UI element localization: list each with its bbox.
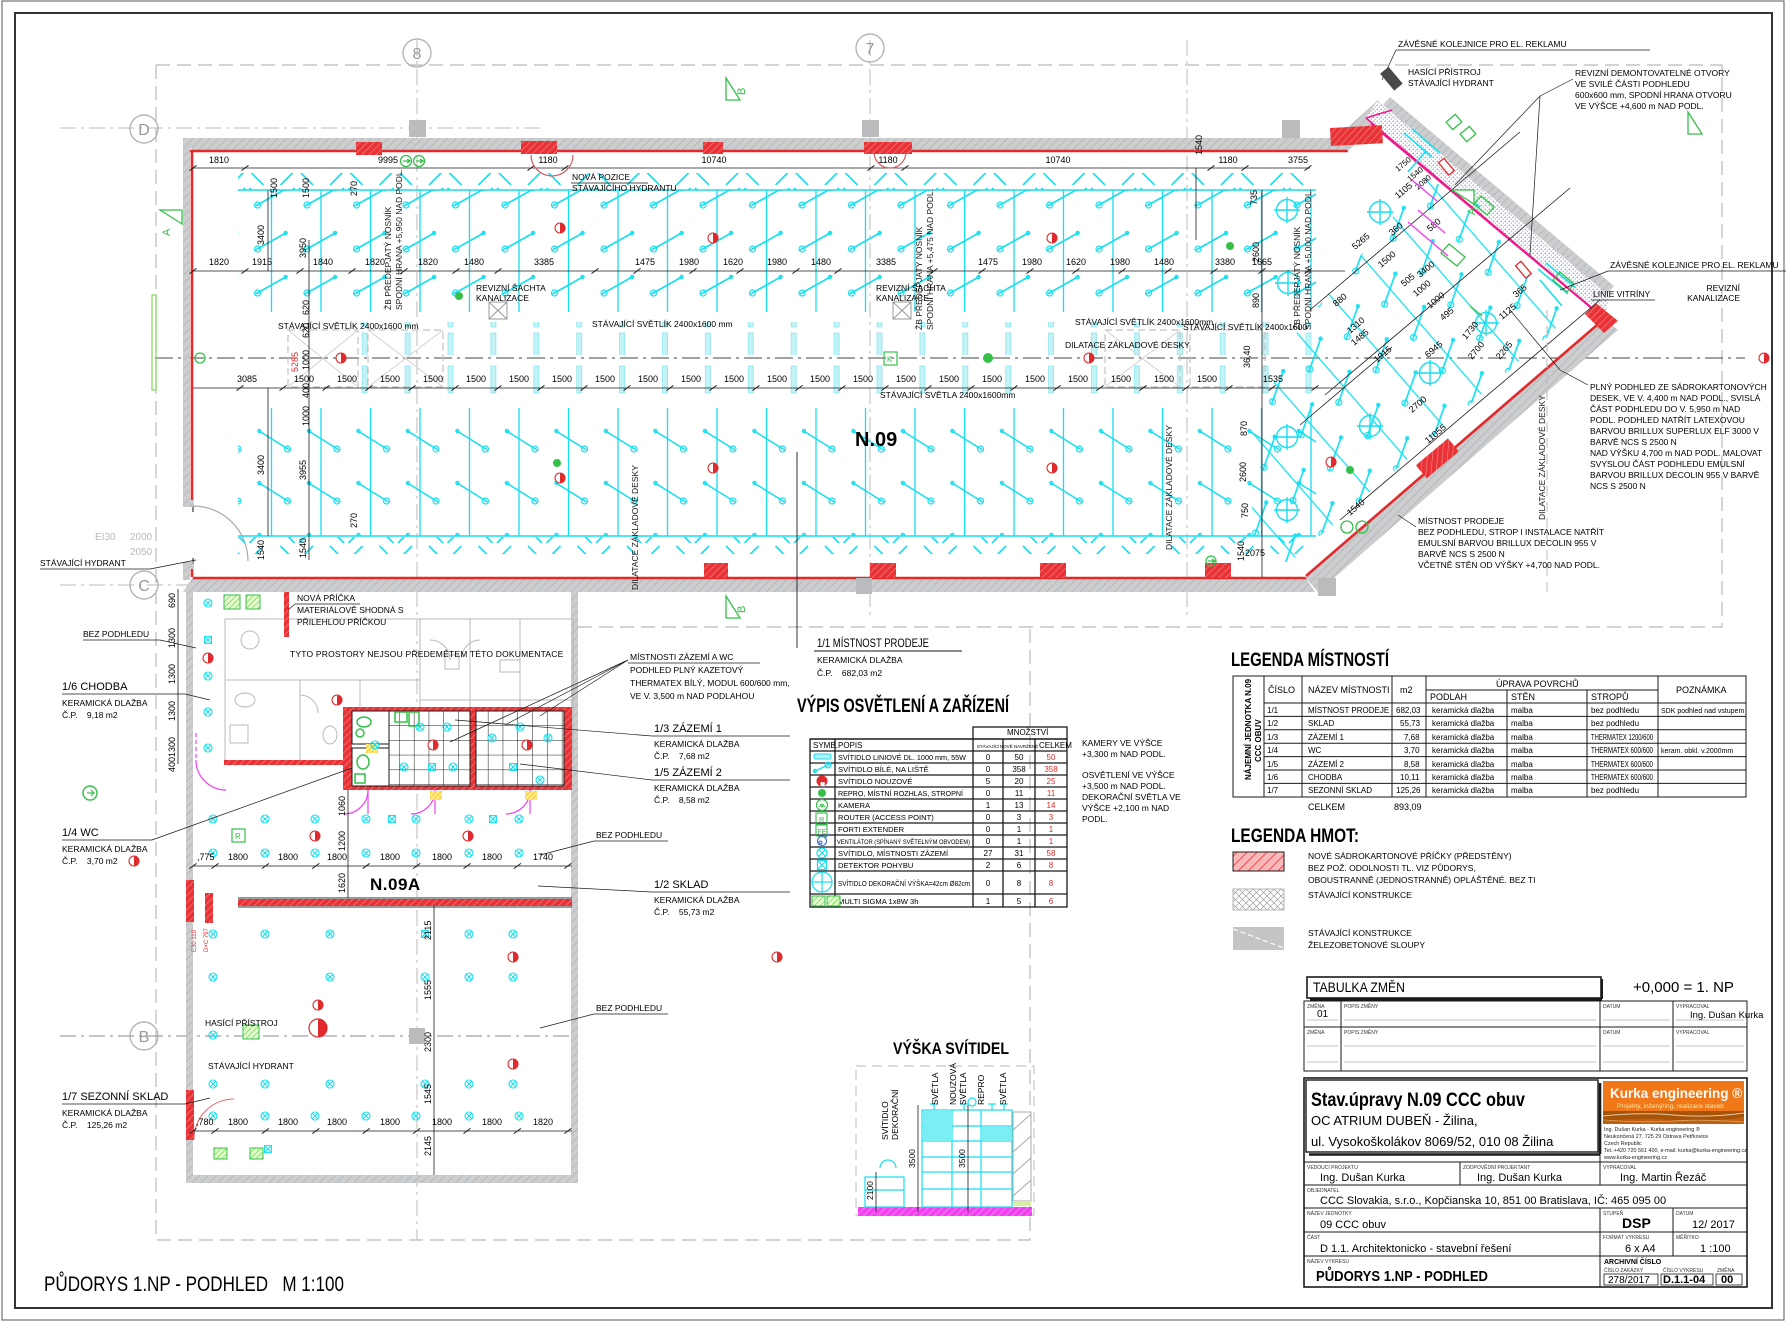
svg-text:REVIZNÍ ŠACHTA: REVIZNÍ ŠACHTA bbox=[876, 283, 946, 293]
svg-text:KERAMICKÁ DLAŽBA: KERAMICKÁ DLAŽBA bbox=[654, 783, 740, 793]
svg-text:ŽELEZOBETONOVÉ SLOUPY: ŽELEZOBETONOVÉ SLOUPY bbox=[1308, 940, 1425, 950]
svg-text:D 1.1. Architektonicko - stave: D 1.1. Architektonicko - stavební řešení bbox=[1320, 1243, 1511, 1255]
svg-text:keram. obkl. v.2000mm: keram. obkl. v.2000mm bbox=[1661, 748, 1733, 755]
svg-text:PODLAH: PODLAH bbox=[1430, 692, 1467, 702]
svg-text:1 :100: 1 :100 bbox=[1700, 1243, 1731, 1255]
svg-text:POPIS ZMĚNY: POPIS ZMĚNY bbox=[1344, 1028, 1379, 1036]
svg-text:KAMERA: KAMERA bbox=[838, 801, 871, 810]
svg-text:keramická dlažba: keramická dlažba bbox=[1432, 719, 1495, 728]
svg-text:keramická dlažba: keramická dlažba bbox=[1432, 706, 1495, 715]
svg-text:ZÁVĚSNÉ KOLEJNICE PRO EL. REKL: ZÁVĚSNÉ KOLEJNICE PRO EL. REKLAMU bbox=[1610, 260, 1779, 270]
svg-text:Ing. Dušan Kurka - Kurka engin: Ing. Dušan Kurka - Kurka engineering ® bbox=[1604, 1126, 1700, 1133]
svg-text:1500: 1500 bbox=[380, 374, 400, 384]
svg-text:1500: 1500 bbox=[294, 374, 314, 384]
svg-text:malba: malba bbox=[1511, 773, 1533, 782]
svg-text:KERAMICKÁ DLAŽBA: KERAMICKÁ DLAŽBA bbox=[62, 844, 148, 854]
svg-text:REVIZNÍ ŠACHTA: REVIZNÍ ŠACHTA bbox=[476, 283, 546, 293]
svg-text:12/ 2017: 12/ 2017 bbox=[1692, 1219, 1735, 1231]
svg-text:SDK podhled nad vstupem: SDK podhled nad vstupem bbox=[1661, 708, 1744, 715]
svg-text:ČÍSLO: ČÍSLO bbox=[1268, 685, 1295, 695]
svg-text:735: 735 bbox=[1249, 190, 1259, 205]
svg-text:MATERIÁLOVĚ SHODNÁ S: MATERIÁLOVĚ SHODNÁ S bbox=[297, 605, 404, 615]
svg-text:8: 8 bbox=[1017, 879, 1022, 888]
svg-text:STÁVAJÍCÍ SVĚTLÍK 2400x1600 mm: STÁVAJÍCÍ SVĚTLÍK 2400x1600 mm bbox=[592, 319, 733, 329]
svg-text:DSP: DSP bbox=[1622, 1215, 1651, 1231]
svg-text:STÁVAJÍCÍ HYDRANT: STÁVAJÍCÍ HYDRANT bbox=[40, 558, 126, 568]
svg-text:N.09: N.09 bbox=[855, 429, 897, 451]
svg-text:E30 110: E30 110 bbox=[192, 929, 198, 952]
svg-text:ČÍSLO VÝKRESU: ČÍSLO VÝKRESU bbox=[1663, 1267, 1704, 1274]
svg-text:1820: 1820 bbox=[418, 257, 438, 267]
svg-text:ul. Vysokoškolákov 8069/52, 01: ul. Vysokoškolákov 8069/52, 010 08 Žilin… bbox=[1311, 1134, 1554, 1149]
svg-text:STÁVAJÍCÍ KONSTRUKCE: STÁVAJÍCÍ KONSTRUKCE bbox=[1308, 890, 1412, 900]
svg-text:870: 870 bbox=[1239, 421, 1249, 436]
svg-text:BEZ PODHLEDU: BEZ PODHLEDU bbox=[596, 830, 662, 840]
svg-text:NÁZEV VÝKRESU: NÁZEV VÝKRESU bbox=[1307, 1258, 1349, 1265]
svg-text:7,68: 7,68 bbox=[1404, 733, 1420, 742]
svg-text:1500: 1500 bbox=[1068, 374, 1088, 384]
svg-text:LINIE VITRÍNY: LINIE VITRÍNY bbox=[1593, 289, 1650, 299]
svg-text:keramická dlažba: keramická dlažba bbox=[1432, 786, 1495, 795]
svg-text:NOVÁ POZICE: NOVÁ POZICE bbox=[572, 172, 630, 182]
svg-text:1800: 1800 bbox=[432, 852, 452, 862]
svg-text:DATUM: DATUM bbox=[1676, 1211, 1693, 1217]
svg-text:1/2: 1/2 bbox=[1267, 719, 1279, 728]
svg-text:1500: 1500 bbox=[767, 374, 787, 384]
svg-text:R: R bbox=[235, 832, 241, 841]
svg-text:malba: malba bbox=[1511, 760, 1533, 769]
svg-text:10740: 10740 bbox=[701, 155, 726, 165]
svg-text:1800: 1800 bbox=[228, 852, 248, 862]
svg-text:SVÍTIDLO LINIOVÉ DL. 1000 mm,: SVÍTIDLO LINIOVÉ DL. 1000 mm, 55W bbox=[838, 753, 967, 762]
svg-text:1500: 1500 bbox=[552, 374, 572, 384]
svg-text:B: B bbox=[736, 88, 748, 95]
svg-text:BEZ POŽ. ODOLNOSTI TL. VIZ PŮ: BEZ POŽ. ODOLNOSTI TL. VIZ PŮDORYS, bbox=[1308, 862, 1476, 873]
svg-text:SKLAD: SKLAD bbox=[1308, 719, 1334, 728]
svg-text:ČÁST PODHLEDU DO V. 5,950 m NA: ČÁST PODHLEDU DO V. 5,950 m NAD bbox=[1590, 404, 1740, 414]
svg-text:SVÍTIDLO NOUZOVÉ: SVÍTIDLO NOUZOVÉ bbox=[838, 777, 912, 786]
svg-text:1060: 1060 bbox=[337, 796, 347, 816]
svg-text:0: 0 bbox=[986, 813, 991, 822]
svg-text:BARVĚ NCS S 2500 N: BARVĚ NCS S 2500 N bbox=[1590, 437, 1677, 447]
svg-text:1300: 1300 bbox=[167, 737, 177, 757]
svg-text:ŽB PŘEDEPJATÝ NOSNÍK: ŽB PŘEDEPJATÝ NOSNÍK bbox=[383, 206, 393, 310]
svg-text:3385: 3385 bbox=[876, 257, 896, 267]
svg-text:3400: 3400 bbox=[256, 455, 266, 475]
svg-text:6: 6 bbox=[1017, 861, 1022, 870]
svg-text:3385: 3385 bbox=[534, 257, 554, 267]
svg-text:THERMATEX 600/600: THERMATEX 600/600 bbox=[1591, 760, 1653, 769]
svg-text:1500: 1500 bbox=[810, 374, 830, 384]
svg-text:NCS S 2500 N: NCS S 2500 N bbox=[1590, 481, 1646, 491]
svg-text:1/3: 1/3 bbox=[1267, 733, 1279, 742]
svg-text:2100: 2100 bbox=[865, 1181, 875, 1200]
svg-text:STĚN: STĚN bbox=[1511, 692, 1535, 702]
svg-text:NOVÁ PŘÍČKA: NOVÁ PŘÍČKA bbox=[297, 593, 355, 603]
svg-text:1500: 1500 bbox=[638, 374, 658, 384]
svg-text:OBJEDNATEL: OBJEDNATEL bbox=[1307, 1188, 1340, 1194]
svg-text:KERAMICKÁ DLAŽBA: KERAMICKÁ DLAŽBA bbox=[654, 895, 740, 905]
svg-text:MÍSTNOST PRODEJE: MÍSTNOST PRODEJE bbox=[1418, 516, 1505, 526]
svg-text:STÁVAJÍCÍHO HYDRANTU: STÁVAJÍCÍHO HYDRANTU bbox=[572, 183, 677, 193]
svg-text:NÁZEV MÍSTNOSTI: NÁZEV MÍSTNOSTI bbox=[1308, 685, 1390, 695]
svg-text:NAD VÝŠKU 4,700 m NAD PODL. MA: NAD VÝŠKU 4,700 m NAD PODL. MALOVAT bbox=[1590, 448, 1762, 458]
svg-text:9995: 9995 bbox=[378, 155, 398, 165]
svg-text:SVĚTLA: SVĚTLA bbox=[958, 1072, 968, 1105]
svg-text:ŽB PŘEDEPJATÝ NOSNÍK: ŽB PŘEDEPJATÝ NOSNÍK bbox=[1292, 226, 1302, 330]
svg-text:1800: 1800 bbox=[278, 1117, 298, 1127]
svg-text:Č.P. 7,68 m2: Č.P. 7,68 m2 bbox=[654, 751, 710, 761]
svg-text:55,73: 55,73 bbox=[1400, 719, 1421, 728]
svg-text:VEDOUCÍ PROJEKTU: VEDOUCÍ PROJEKTU bbox=[1307, 1164, 1358, 1171]
svg-text:CCC Slovakia, s.r.o., Kopčians: CCC Slovakia, s.r.o., Kopčianska 10, 851… bbox=[1320, 1194, 1666, 1207]
svg-text:358: 358 bbox=[1012, 765, 1026, 774]
svg-text:1300: 1300 bbox=[167, 628, 177, 648]
svg-text:1820: 1820 bbox=[209, 257, 229, 267]
svg-text:BARVĚ NCS S 2500 N: BARVĚ NCS S 2500 N bbox=[1418, 549, 1505, 559]
svg-text:1840: 1840 bbox=[313, 257, 333, 267]
svg-text:1200: 1200 bbox=[337, 831, 347, 851]
svg-text:EI30: EI30 bbox=[95, 532, 116, 543]
svg-text:NÁZEV JEDNOTKY: NÁZEV JEDNOTKY bbox=[1307, 1210, 1352, 1217]
svg-text:keramická dlažba: keramická dlažba bbox=[1432, 760, 1495, 769]
svg-text:890: 890 bbox=[1251, 293, 1261, 308]
svg-text:A: A bbox=[1466, 207, 1478, 215]
svg-text:600x600 mm, SPODNÍ HRANA OTVOR: 600x600 mm, SPODNÍ HRANA OTVORU bbox=[1575, 90, 1732, 100]
svg-text:REVIZNÍ DEMONTOVATELNÉ OTVORY: REVIZNÍ DEMONTOVATELNÉ OTVORY bbox=[1575, 68, 1730, 78]
svg-text:POPIS: POPIS bbox=[838, 741, 862, 750]
svg-text:11: 11 bbox=[1047, 789, 1056, 798]
svg-text:1/1: 1/1 bbox=[1267, 706, 1279, 715]
svg-text:0: 0 bbox=[986, 837, 991, 846]
svg-text:STROPŮ: STROPŮ bbox=[1591, 691, 1629, 702]
svg-text:Kurka engineering ®: Kurka engineering ® bbox=[1610, 1086, 1742, 1101]
svg-text:DILATACE ZÁKLADOVÉ DESKY: DILATACE ZÁKLADOVÉ DESKY bbox=[630, 465, 640, 590]
svg-text:8: 8 bbox=[413, 46, 422, 63]
svg-text:1300: 1300 bbox=[167, 664, 177, 684]
svg-text:Č.P. 125,26 m2: Č.P. 125,26 m2 bbox=[62, 1120, 127, 1130]
svg-text:27: 27 bbox=[984, 849, 993, 858]
svg-text:DILATACE ZÁKLADOVÉ DESKY: DILATACE ZÁKLADOVÉ DESKY bbox=[1164, 425, 1174, 550]
svg-text:Ing. Dušan Kurka: Ing. Dušan Kurka bbox=[1320, 1172, 1406, 1184]
svg-text:TYTO PROSTORY NEJSOU PŘEDEMĚTE: TYTO PROSTORY NEJSOU PŘEDEMĚTEM TÉTO DOK… bbox=[290, 649, 564, 659]
svg-text:25: 25 bbox=[1047, 777, 1056, 786]
svg-text:1800: 1800 bbox=[327, 852, 347, 862]
svg-text:1535: 1535 bbox=[1263, 374, 1283, 384]
svg-text:7: 7 bbox=[866, 41, 875, 58]
svg-text:NOVÉ SÁDROKARTONOVÉ PŘÍČKY (P: NOVÉ SÁDROKARTONOVÉ PŘÍČKY (PŘEDSTĚNY) bbox=[1308, 851, 1512, 861]
svg-text:DEKORAČNÍ: DEKORAČNÍ bbox=[890, 1089, 900, 1140]
svg-text:09 CCC obuv: 09 CCC obuv bbox=[1320, 1219, 1387, 1231]
svg-text:THERMATEX BÍLÝ, MODUL 600/600: THERMATEX BÍLÝ, MODUL 600/600 mm, bbox=[630, 678, 790, 688]
svg-text:1820: 1820 bbox=[533, 1117, 553, 1127]
svg-text:2600: 2600 bbox=[1251, 242, 1261, 262]
svg-text:VE SVILÉ ČÁSTI PODHLEDU: VE SVILÉ ČÁSTI PODHLEDU bbox=[1575, 79, 1690, 89]
svg-text:1/4 WC: 1/4 WC bbox=[62, 827, 99, 839]
svg-text:1475: 1475 bbox=[978, 257, 998, 267]
svg-text:STUPEŇ: STUPEŇ bbox=[1603, 1210, 1624, 1217]
svg-text:1500: 1500 bbox=[595, 374, 615, 384]
svg-text:1000: 1000 bbox=[301, 350, 311, 370]
svg-text:ZÁZEMÍ 2: ZÁZEMÍ 2 bbox=[1308, 760, 1345, 769]
svg-text:1: 1 bbox=[1017, 825, 1022, 834]
svg-text:1800: 1800 bbox=[380, 1117, 400, 1127]
svg-text:BARVOU BRILLUX DECOLIN 955 V B: BARVOU BRILLUX DECOLIN 955 V BARVĚ bbox=[1590, 470, 1760, 480]
svg-text:DEKORAČNÍ SVĚTLA VE: DEKORAČNÍ SVĚTLA VE bbox=[1082, 792, 1181, 802]
svg-text:OSVĚTLENÍ VE VÝŠCE: OSVĚTLENÍ VE VÝŠCE bbox=[1082, 770, 1175, 780]
svg-text:3085: 3085 bbox=[237, 374, 257, 384]
svg-text:LEGENDA MÍSTNOSTÍ: LEGENDA MÍSTNOSTÍ bbox=[1231, 649, 1390, 671]
svg-text:VENTILÁTOR (SPÍNANÝ SVĚTELNÝM: VENTILÁTOR (SPÍNANÝ SVĚTELNÝM OBVODEM) bbox=[837, 837, 970, 846]
svg-text:PODHLED PLNÝ KAZETOVÝ: PODHLED PLNÝ KAZETOVÝ bbox=[630, 665, 744, 675]
svg-text:NOUZOVÁ: NOUZOVÁ bbox=[948, 1063, 958, 1105]
svg-text:www.kurka-engineering.cz: www.kurka-engineering.cz bbox=[1603, 1155, 1667, 1161]
svg-text:2: 2 bbox=[986, 861, 991, 870]
svg-text:TABULKA ZMĚN: TABULKA ZMĚN bbox=[1313, 980, 1405, 995]
svg-text:750: 750 bbox=[1240, 503, 1250, 518]
svg-text:STÁVAJÍCÍ SVĚTLÍK 2400x1600 mm: STÁVAJÍCÍ SVĚTLÍK 2400x1600 mm bbox=[278, 321, 419, 331]
svg-text:1/4: 1/4 bbox=[1267, 746, 1279, 755]
svg-text:278/2017: 278/2017 bbox=[1608, 1275, 1650, 1286]
svg-text:Ing. Dušan Kurka: Ing. Dušan Kurka bbox=[1477, 1172, 1563, 1184]
svg-text:1915: 1915 bbox=[252, 257, 272, 267]
svg-text:1500: 1500 bbox=[896, 374, 916, 384]
svg-text:00: 00 bbox=[1721, 1274, 1733, 1286]
svg-text:Neukončená 27, 725 29 Ostrava: Neukončená 27, 725 29 Ostrava Petřkovice bbox=[1604, 1134, 1708, 1140]
svg-text:682,03: 682,03 bbox=[1396, 706, 1421, 715]
svg-text:1180: 1180 bbox=[878, 155, 897, 165]
svg-text:3950: 3950 bbox=[298, 238, 308, 258]
svg-text:KERAMICKÁ DLAŽBA: KERAMICKÁ DLAŽBA bbox=[817, 655, 903, 665]
svg-text:MULTI SIGMA 1x8W 3h: MULTI SIGMA 1x8W 3h bbox=[838, 897, 918, 906]
svg-text:SPODNÍ HRANA +5,000 NAD PODL.: SPODNÍ HRANA +5,000 NAD PODL. bbox=[1303, 189, 1313, 330]
svg-text:8: 8 bbox=[1049, 879, 1054, 888]
svg-text:358: 358 bbox=[1044, 765, 1058, 774]
svg-text:DESEK, VE V. 4,400 m NAD POD: DESEK, VE V. 4,400 m NAD PODL., SVISLÁ bbox=[1590, 393, 1761, 403]
svg-text:VYPRACOVAL: VYPRACOVAL bbox=[1676, 1030, 1710, 1036]
svg-text:PŘILEHLOU PŘÍČKOU: PŘILEHLOU PŘÍČKOU bbox=[297, 617, 386, 627]
svg-text:125,26: 125,26 bbox=[1396, 786, 1421, 795]
svg-text:1500: 1500 bbox=[301, 178, 311, 198]
svg-text:1300: 1300 bbox=[167, 701, 177, 721]
svg-text:CHODBA: CHODBA bbox=[1308, 773, 1343, 782]
svg-text:MÍSTNOST PRODEJE: MÍSTNOST PRODEJE bbox=[1308, 706, 1389, 715]
svg-text:POPIS ZMĚNY: POPIS ZMĚNY bbox=[1344, 1002, 1379, 1010]
svg-text:2050: 2050 bbox=[130, 547, 153, 558]
svg-text:1/2 SKLAD: 1/2 SKLAD bbox=[654, 879, 708, 891]
svg-text:58: 58 bbox=[1047, 849, 1056, 858]
svg-text:6: 6 bbox=[1049, 897, 1054, 906]
svg-text:1480: 1480 bbox=[464, 257, 484, 267]
svg-text:VE V. 3,500 m NAD PODLAHOU: VE V. 3,500 m NAD PODLAHOU bbox=[630, 691, 754, 701]
svg-text:m2: m2 bbox=[1400, 685, 1413, 695]
svg-text:1180: 1180 bbox=[538, 155, 557, 165]
svg-text:OBOUSTRANNĚ (JEDNOSTRANNĚ) OP: OBOUSTRANNĚ (JEDNOSTRANNĚ) OPLÁŠTĚNÉ. BE… bbox=[1308, 875, 1536, 885]
svg-text:3: 3 bbox=[1049, 813, 1054, 822]
svg-text:STÁVAJÍCÍ: STÁVAJÍCÍ bbox=[977, 743, 1000, 749]
svg-text:3: 3 bbox=[1017, 813, 1022, 822]
svg-text:400: 400 bbox=[301, 383, 311, 398]
svg-text:SPODNÍ HRANA +5,950 NAD PODL.: SPODNÍ HRANA +5,950 NAD PODL. bbox=[394, 169, 404, 310]
svg-text:STÁVAJÍCÍ KONSTRUKCE: STÁVAJÍCÍ KONSTRUKCE bbox=[1308, 928, 1412, 938]
svg-text:+3,500 m NAD PODL.: +3,500 m NAD PODL. bbox=[1082, 781, 1166, 791]
svg-text:1500: 1500 bbox=[681, 374, 701, 384]
svg-text:1800: 1800 bbox=[278, 852, 298, 862]
svg-text:1/6 CHODBA: 1/6 CHODBA bbox=[62, 681, 128, 693]
svg-text:1: 1 bbox=[986, 801, 991, 810]
svg-text:EMULSNÍ BARVOU BRILLUX DECOLIN: EMULSNÍ BARVOU BRILLUX DECOLIN 955 V bbox=[1418, 538, 1597, 548]
svg-text:MĚŘÍTKO: MĚŘÍTKO bbox=[1676, 1233, 1699, 1241]
svg-text:1800: 1800 bbox=[482, 852, 502, 862]
svg-text:NOVĚ NAVRŽENÉ: NOVĚ NAVRŽENÉ bbox=[1000, 742, 1038, 749]
svg-text:1545: 1545 bbox=[423, 1084, 433, 1104]
svg-text:1810: 1810 bbox=[209, 155, 229, 165]
svg-text:bez podhledu: bez podhledu bbox=[1591, 706, 1639, 715]
svg-text:HASÍCÍ PŘÍSTROJ: HASÍCÍ PŘÍSTROJ bbox=[1408, 67, 1481, 77]
svg-text:5: 5 bbox=[986, 777, 991, 786]
svg-text:1620: 1620 bbox=[723, 257, 743, 267]
svg-text:CELKEM: CELKEM bbox=[1308, 802, 1345, 812]
svg-text:malba: malba bbox=[1511, 786, 1533, 795]
svg-text:1540: 1540 bbox=[1194, 135, 1204, 155]
svg-text:1180: 1180 bbox=[1218, 155, 1237, 165]
svg-text:BEZ PODHLEDU: BEZ PODHLEDU bbox=[596, 1003, 662, 1013]
svg-text:1500: 1500 bbox=[1197, 374, 1217, 384]
svg-text:1500: 1500 bbox=[1154, 374, 1174, 384]
svg-text:A: A bbox=[161, 228, 173, 236]
svg-text:1/1 MÍSTNOST PRODEJE: 1/1 MÍSTNOST PRODEJE bbox=[817, 635, 929, 650]
svg-text:SVYSLOU ČÁST PODHLEDU EMULSNÍ: SVYSLOU ČÁST PODHLEDU EMULSNÍ bbox=[1590, 459, 1745, 469]
svg-text:ÚPRAVA POVRCHŮ: ÚPRAVA POVRCHŮ bbox=[1496, 678, 1579, 689]
svg-text:1555: 1555 bbox=[423, 980, 433, 1000]
svg-text:,780: ,780 bbox=[196, 1117, 214, 1127]
svg-text:D.1.1-04: D.1.1-04 bbox=[1663, 1274, 1706, 1286]
svg-text:1800: 1800 bbox=[482, 1117, 502, 1127]
svg-text:3400: 3400 bbox=[256, 225, 266, 245]
svg-text:11: 11 bbox=[1015, 789, 1024, 798]
svg-text:WC: WC bbox=[1308, 746, 1322, 755]
svg-text:1800: 1800 bbox=[228, 1117, 248, 1127]
svg-text:D×C 797: D×C 797 bbox=[204, 927, 210, 952]
svg-text:malba: malba bbox=[1511, 706, 1533, 715]
svg-text:2300: 2300 bbox=[423, 1032, 433, 1052]
svg-text:1480: 1480 bbox=[811, 257, 831, 267]
svg-text:2145: 2145 bbox=[423, 1136, 433, 1156]
svg-text:FE: FE bbox=[818, 829, 827, 836]
svg-text:CCC OBUV: CCC OBUV bbox=[1254, 719, 1263, 762]
svg-text:3380: 3380 bbox=[1215, 257, 1235, 267]
svg-text:SVĚTLA: SVĚTLA bbox=[998, 1072, 1008, 1105]
svg-text:20: 20 bbox=[1015, 777, 1024, 786]
svg-text:MNOŽSTVÍ: MNOŽSTVÍ bbox=[1007, 728, 1049, 737]
svg-text:OC ATRIUM DUBEŇ - Žilina,: OC ATRIUM DUBEŇ - Žilina, bbox=[1311, 1113, 1478, 1128]
svg-text:PODL. PODHLED NATŘÍT LATEXOVOU: PODL. PODHLED NATŘÍT LATEXOVOU bbox=[1590, 415, 1745, 425]
svg-text:BARVOU BRILLUX SUPERLUX ELF 30: BARVOU BRILLUX SUPERLUX ELF 3000 V bbox=[1590, 426, 1759, 436]
svg-text:KERAMICKÁ DLAŽBA: KERAMICKÁ DLAŽBA bbox=[62, 1108, 148, 1118]
svg-text:bez podhledu: bez podhledu bbox=[1591, 786, 1639, 795]
svg-text:1500: 1500 bbox=[1111, 374, 1131, 384]
svg-text:8,58: 8,58 bbox=[1404, 760, 1420, 769]
svg-text:ŽB PŘEDEPJATÝ NOSNÍK: ŽB PŘEDEPJATÝ NOSNÍK bbox=[914, 226, 924, 330]
svg-text:ROUTER (ACCESS POINT): ROUTER (ACCESS POINT) bbox=[838, 813, 934, 822]
svg-text:keramická dlažba: keramická dlažba bbox=[1432, 733, 1495, 742]
svg-text:3,70: 3,70 bbox=[1404, 746, 1420, 755]
svg-text:SVÍTIDLO BÍLÉ, NA LIŠTĚ: SVÍTIDLO BÍLÉ, NA LIŠTĚ bbox=[838, 765, 929, 774]
svg-text:ČÁST: ČÁST bbox=[1307, 1234, 1320, 1241]
svg-text:R: R bbox=[819, 815, 825, 824]
svg-text:MÍSTNOSTI ZÁZEMÍ A WC: MÍSTNOSTI ZÁZEMÍ A WC bbox=[630, 652, 733, 662]
svg-text:10740: 10740 bbox=[1045, 155, 1070, 165]
svg-text:1980: 1980 bbox=[1110, 257, 1130, 267]
svg-text:,775: ,775 bbox=[197, 852, 215, 862]
svg-text:8: 8 bbox=[1049, 861, 1054, 870]
svg-text:malba: malba bbox=[1511, 746, 1533, 755]
svg-text:1475: 1475 bbox=[635, 257, 655, 267]
svg-text:1/5: 1/5 bbox=[1267, 760, 1279, 769]
svg-text:Projekty, inženýring, realizac: Projekty, inženýring, realizace staveb bbox=[1617, 1103, 1724, 1110]
svg-text:1620: 1620 bbox=[337, 873, 347, 893]
svg-text:THERMATEX 600/600: THERMATEX 600/600 bbox=[1591, 746, 1653, 755]
svg-text:1500: 1500 bbox=[337, 374, 357, 384]
svg-text:PLNÝ PODHLED ZE SÁDROKARTONOVÝ: PLNÝ PODHLED ZE SÁDROKARTONOVÝCH bbox=[1590, 382, 1767, 392]
svg-text:THERMATEX 600/600: THERMATEX 600/600 bbox=[1591, 773, 1653, 782]
svg-text:SVÍTIDLO: SVÍTIDLO bbox=[880, 1101, 890, 1140]
svg-text:1540: 1540 bbox=[298, 538, 308, 558]
svg-text:10,11: 10,11 bbox=[1400, 773, 1420, 782]
svg-text:SVÍTIDLO, MÍSTNOSTI ZÁZEMÍ: SVÍTIDLO, MÍSTNOSTI ZÁZEMÍ bbox=[838, 849, 949, 858]
svg-text:Tel.:+420 720 561 400, e-mail:: Tel.:+420 720 561 400, e-mail: kurka@kur… bbox=[1604, 1148, 1747, 1154]
svg-text:1500: 1500 bbox=[423, 374, 443, 384]
svg-text:ZÁZEMÍ 1: ZÁZEMÍ 1 bbox=[1308, 733, 1345, 742]
svg-text:Stav.úpravy N.09 CCC obuv: Stav.úpravy N.09 CCC obuv bbox=[1311, 1090, 1525, 1111]
svg-text:3955: 3955 bbox=[298, 460, 308, 480]
svg-text:1500: 1500 bbox=[853, 374, 873, 384]
svg-text:bez podhledu: bez podhledu bbox=[1591, 719, 1639, 728]
svg-text:malba: malba bbox=[1511, 733, 1533, 742]
svg-text:Czech Republic: Czech Republic bbox=[1604, 1141, 1642, 1147]
svg-text:ZÁVĚSNÉ KOLEJNICE PRO EL. REKL: ZÁVĚSNÉ KOLEJNICE PRO EL. REKLAMU bbox=[1398, 39, 1567, 49]
svg-text:1500: 1500 bbox=[724, 374, 744, 384]
svg-text:Ing. Dušan Kurka: Ing. Dušan Kurka bbox=[1690, 1010, 1764, 1021]
svg-text:SPODNÍ HRANA +5,475 NAD PODL.: SPODNÍ HRANA +5,475 NAD PODL. bbox=[925, 189, 935, 330]
svg-text:SYMB.: SYMB. bbox=[813, 741, 838, 750]
svg-text:1500: 1500 bbox=[466, 374, 486, 384]
svg-text:3500: 3500 bbox=[957, 1149, 967, 1168]
svg-text:620: 620 bbox=[301, 300, 311, 315]
svg-text:0: 0 bbox=[986, 765, 991, 774]
svg-text:1: 1 bbox=[1017, 837, 1022, 846]
svg-text:LEGENDA HMOT:: LEGENDA HMOT: bbox=[1231, 826, 1359, 847]
svg-text:ZODPOVĚDNÍ PROJEKTANT: ZODPOVĚDNÍ PROJEKTANT bbox=[1463, 1163, 1530, 1171]
svg-text:1000: 1000 bbox=[301, 406, 311, 426]
svg-text:PŮDORYS 1.NP - PODHLED M 1:1: PŮDORYS 1.NP - PODHLED M 1:100 bbox=[44, 1272, 344, 1296]
svg-text:1800: 1800 bbox=[327, 1117, 347, 1127]
svg-text:Č.P. 8,58 m2: Č.P. 8,58 m2 bbox=[654, 795, 710, 805]
svg-text:1/7 SEZONNÍ SKLAD: 1/7 SEZONNÍ SKLAD bbox=[62, 1090, 168, 1103]
svg-text:+0,000 = 1. NP: +0,000 = 1. NP bbox=[1633, 979, 1734, 996]
svg-text:STÁVAJÍCÍ HYDRANT: STÁVAJÍCÍ HYDRANT bbox=[1408, 78, 1494, 88]
svg-text:STÁVAJÍCÍ HYDRANT: STÁVAJÍCÍ HYDRANT bbox=[208, 1061, 294, 1071]
svg-text:CELKEM: CELKEM bbox=[1039, 741, 1072, 750]
svg-text:STÁVAJÍCÍ SVĚTLA 2400x1600mm: STÁVAJÍCÍ SVĚTLA 2400x1600mm bbox=[880, 390, 1015, 400]
svg-text:893,09: 893,09 bbox=[1394, 802, 1422, 812]
svg-text:ZMĚNA: ZMĚNA bbox=[1307, 1028, 1325, 1036]
svg-text:1480: 1480 bbox=[1154, 257, 1174, 267]
svg-text:1500: 1500 bbox=[982, 374, 1002, 384]
svg-text:VČETNĚ STĚN OD VÝŠKY +4,700 NA: VČETNĚ STĚN OD VÝŠKY +4,700 NAD PODL. bbox=[1418, 560, 1600, 570]
svg-text:1980: 1980 bbox=[767, 257, 787, 267]
svg-text:1/6: 1/6 bbox=[1267, 773, 1279, 782]
